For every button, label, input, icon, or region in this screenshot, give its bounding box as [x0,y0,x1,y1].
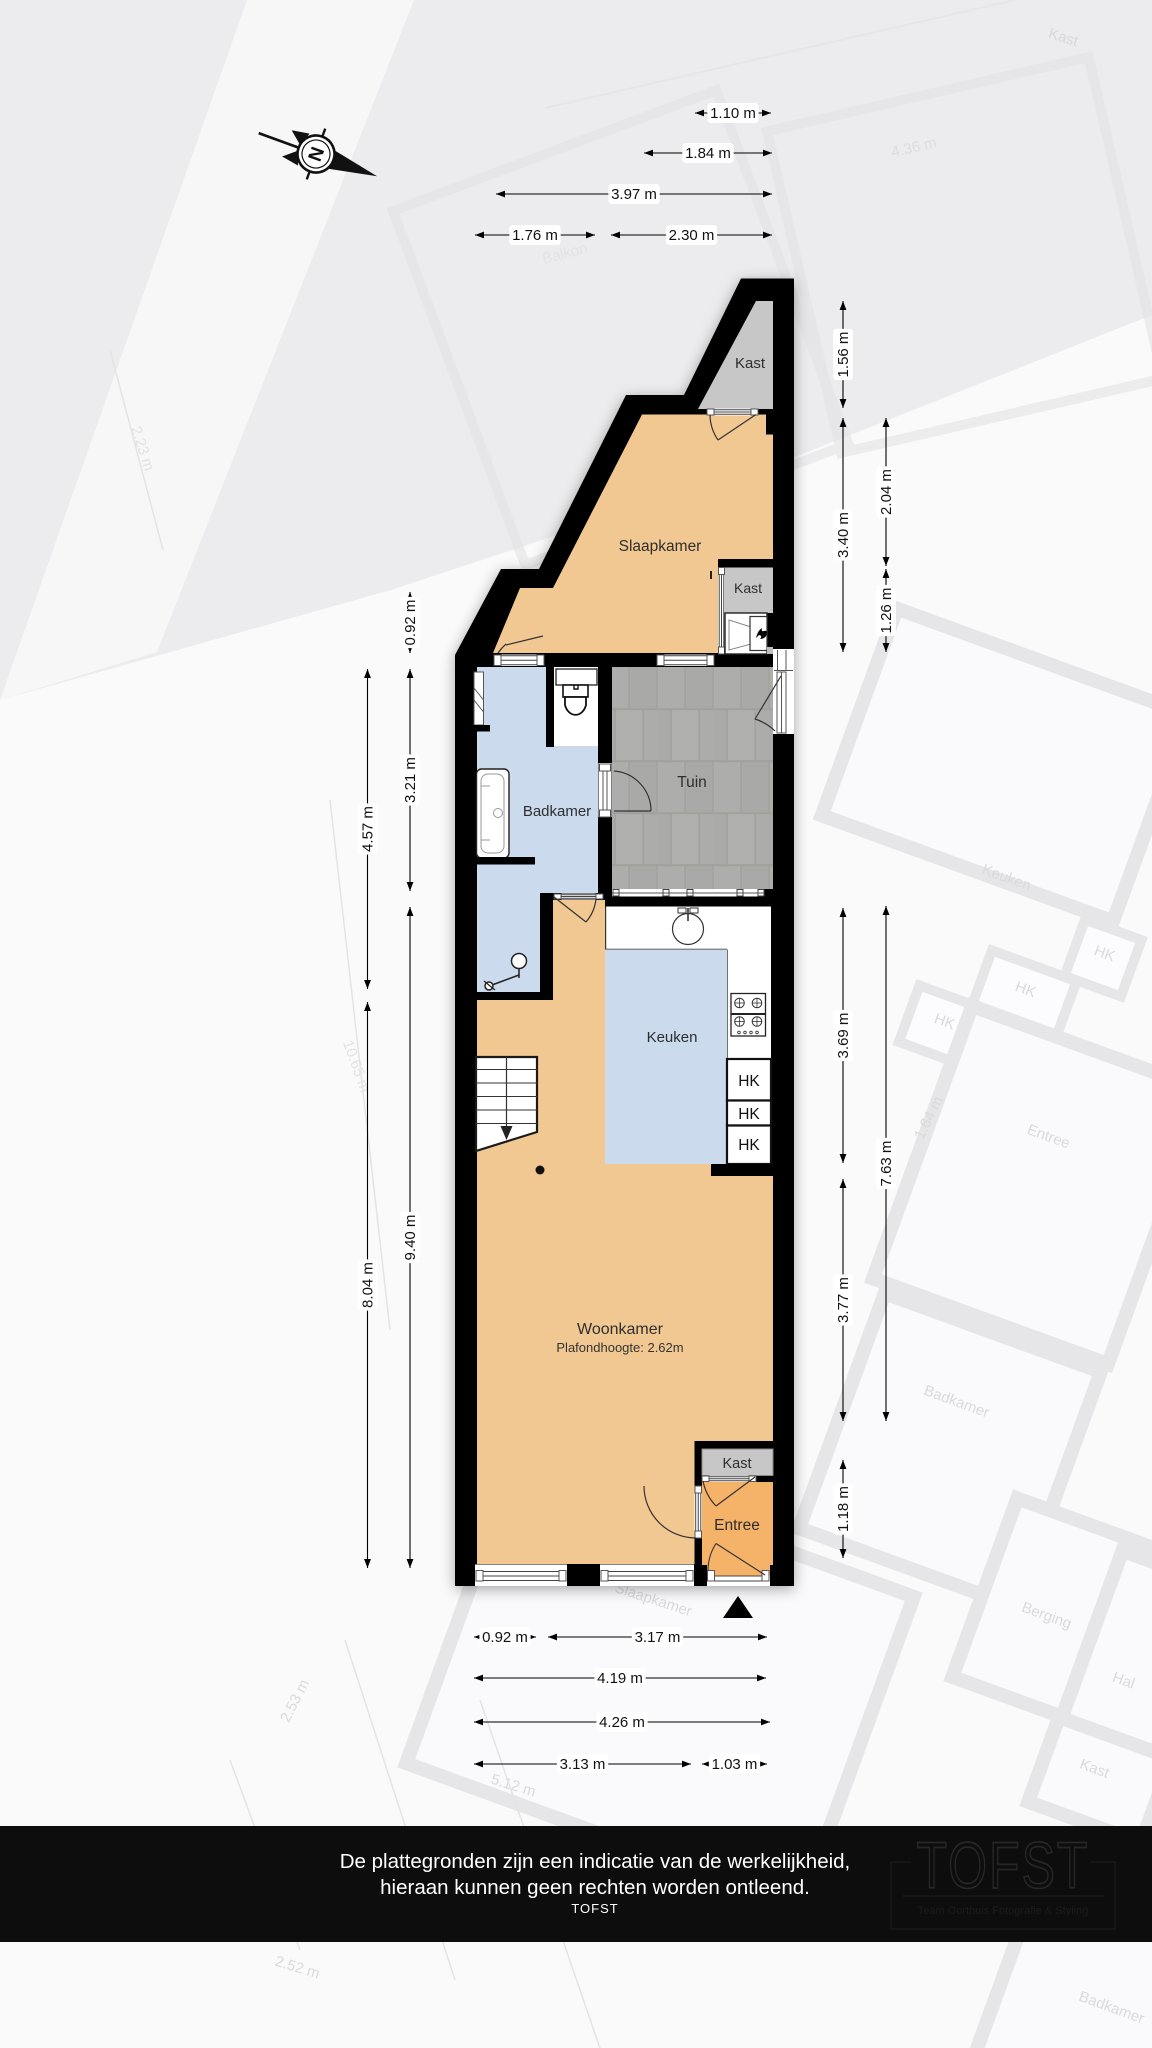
svg-text:4.19 m: 4.19 m [597,1670,643,1687]
svg-text:1.10 m: 1.10 m [710,105,756,122]
svg-text:Kast: Kast [734,580,762,596]
svg-text:0.92 m: 0.92 m [402,600,419,646]
svg-text:HK: HK [738,1137,760,1154]
svg-text:Team Oorthuis Fotografie & Sty: Team Oorthuis Fotografie & Styling [918,1905,1089,1917]
svg-text:TOFST: TOFST [571,1901,618,1916]
svg-text:Kast: Kast [722,1456,751,1472]
svg-text:TOFST: TOFST [917,1829,1090,1902]
svg-text:9.40 m: 9.40 m [402,1215,419,1261]
svg-text:Keuken: Keuken [647,1029,698,1046]
svg-text:1.84 m: 1.84 m [685,145,731,162]
svg-text:8.04 m: 8.04 m [360,1262,377,1308]
svg-text:1.26 m: 1.26 m [878,588,895,634]
svg-text:Woonkamer: Woonkamer [577,1321,664,1338]
svg-text:3.13 m: 3.13 m [560,1756,606,1773]
svg-text:3.77 m: 3.77 m [835,1277,852,1323]
svg-text:2.30 m: 2.30 m [669,227,715,244]
svg-text:0.92 m: 0.92 m [482,1629,528,1646]
svg-text:7.63 m: 7.63 m [878,1141,895,1187]
svg-text:hieraan kunnen geen rechten wo: hieraan kunnen geen rechten worden ontle… [380,1876,810,1899]
svg-text:3.21 m: 3.21 m [402,757,419,803]
svg-text:3.69 m: 3.69 m [835,1013,852,1059]
svg-text:4.26 m: 4.26 m [599,1714,645,1731]
svg-text:3.40 m: 3.40 m [835,512,852,558]
svg-text:De plattegronden zijn een indi: De plattegronden zijn een indicatie van … [340,1850,851,1873]
svg-text:4.57 m: 4.57 m [360,806,377,852]
svg-text:3.17 m: 3.17 m [635,1629,681,1646]
svg-text:Badkamer: Badkamer [523,803,591,820]
svg-text:Kast: Kast [735,355,766,372]
svg-text:1.56 m: 1.56 m [835,332,852,378]
svg-text:1.18 m: 1.18 m [835,1486,852,1532]
svg-text:Slaapkamer: Slaapkamer [619,538,702,555]
svg-text:3.97 m: 3.97 m [611,186,657,203]
svg-text:Tuin: Tuin [677,774,707,791]
svg-text:Plafondhoogte: 2.62m: Plafondhoogte: 2.62m [556,1340,683,1355]
svg-text:HK: HK [738,1106,760,1123]
svg-text:HK: HK [738,1073,760,1090]
svg-text:Entree: Entree [714,1517,760,1534]
svg-text:1.76 m: 1.76 m [512,227,558,244]
svg-text:2.04 m: 2.04 m [878,469,895,515]
svg-text:1.03 m: 1.03 m [712,1756,758,1773]
